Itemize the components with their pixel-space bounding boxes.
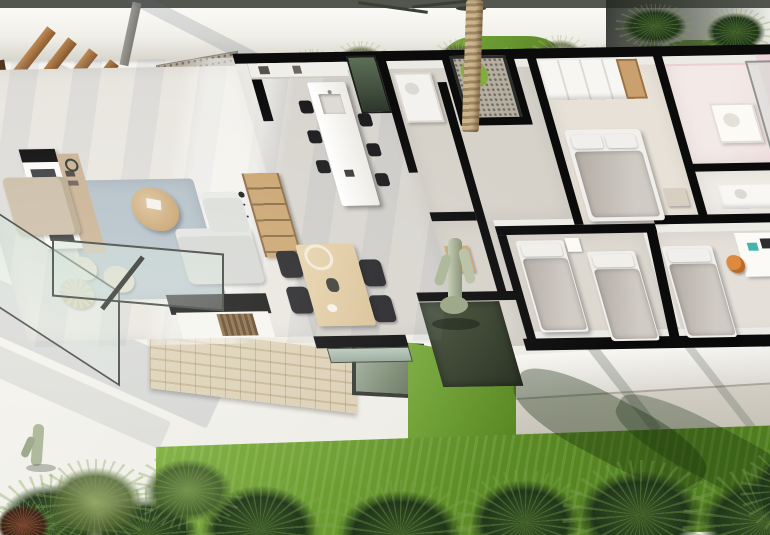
bed-pillow: [604, 134, 638, 148]
counter-appliance: [258, 66, 270, 74]
bed-pillow: [666, 248, 712, 262]
tv-wall-cap: [19, 149, 59, 163]
island-decor: [344, 170, 355, 177]
bed-pillow: [591, 254, 635, 268]
bed-pillow: [570, 134, 604, 148]
floor-plan-render: [0, 0, 770, 535]
cactus: [430, 232, 490, 332]
wine-rack: [216, 313, 258, 336]
wall: [688, 161, 770, 171]
island-faucet: [327, 90, 332, 94]
console-books: [68, 180, 79, 185]
palm-shrub: [128, 448, 248, 533]
glass-door-lower: [327, 347, 413, 363]
desk-laptop: [760, 238, 770, 248]
wall: [429, 212, 477, 222]
bed-pillow: [520, 243, 564, 257]
bedside-bench: [663, 188, 690, 206]
desk-teal-accent: [747, 243, 759, 251]
